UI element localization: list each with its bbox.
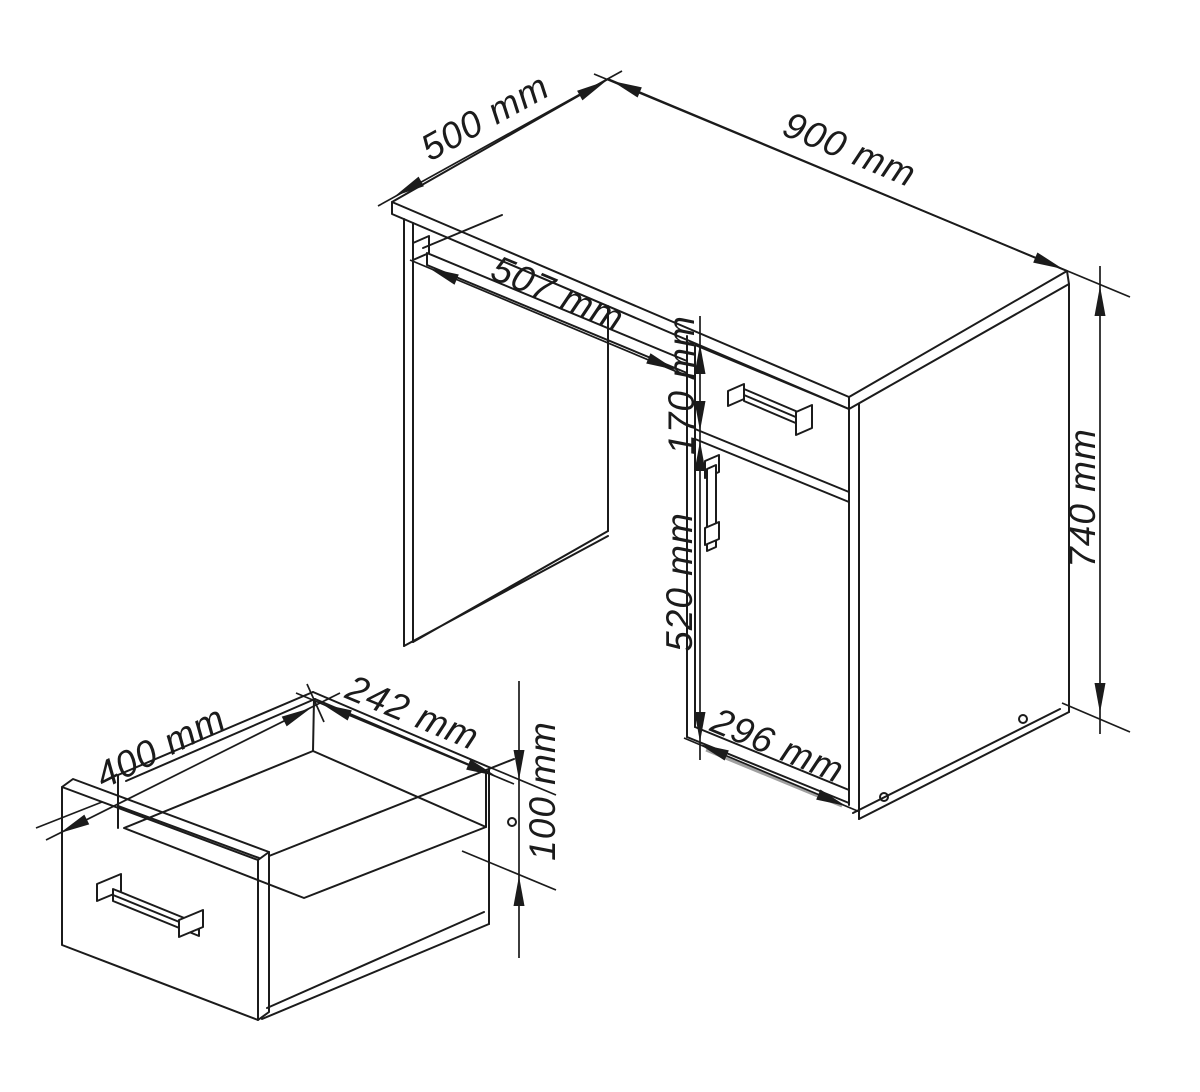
dim-label-width: 900 mm xyxy=(777,104,922,195)
dim-label-tray-depth: 507 mm xyxy=(486,248,631,340)
drawer-screw-hole xyxy=(508,818,516,826)
drawer-handle-right-post xyxy=(796,405,812,435)
dim-label-drawer-front-height: 170 mm xyxy=(661,315,702,455)
drawer-panel-right-strip xyxy=(258,852,269,1020)
desk-dimension-drawing: 500 mm 900 mm 740 mm 507 mm 170 mm 520 m… xyxy=(0,0,1200,1092)
dim-cabinet-width-296: 296 mm xyxy=(684,699,860,812)
drawer-panel-top-strip xyxy=(62,779,269,860)
drawer-handle-bar-line xyxy=(744,395,798,418)
drawer-detail-handle xyxy=(97,874,203,937)
dim-label-depth: 500 mm xyxy=(414,65,556,169)
drawer-box-rear-right-edge xyxy=(486,770,489,924)
dim-desk-height-740: 740 mm xyxy=(1062,266,1130,734)
dim-desk-depth-500: 500 mm xyxy=(378,65,622,206)
right-panel-bottom-edge xyxy=(853,709,1069,819)
drawer-box-right-top-edge xyxy=(269,759,514,856)
dim-label-height: 740 mm xyxy=(1062,428,1103,568)
dim-label-door-height: 520 mm xyxy=(659,512,700,652)
drawer-front-top-edge xyxy=(695,345,849,409)
left-panel-front-edge xyxy=(404,219,413,646)
left-panel-bottom-edge xyxy=(404,531,608,646)
dim-drawer-inner-width-242: 242 mm xyxy=(296,666,514,784)
screw-cap-rear xyxy=(1019,715,1027,723)
drawer-handle-left-post xyxy=(728,384,744,406)
drawer-handle xyxy=(728,384,812,435)
drawer-box-bottom-edge xyxy=(262,912,489,1019)
dim-label-drawer-inner-width: 242 mm xyxy=(339,666,485,758)
dim-desk-width-900: 900 mm xyxy=(594,74,1130,297)
technical-drawing-page: 500 mm 900 mm 740 mm 507 mm 170 mm 520 m… xyxy=(0,0,1200,1092)
door-handle xyxy=(705,455,719,551)
drawer-box-front-top-edge xyxy=(118,806,259,858)
desktop-right-edge xyxy=(849,271,1069,409)
dim-label-drawer-depth: 400 mm xyxy=(89,697,232,796)
dim-door-height-520: 520 mm xyxy=(659,441,706,742)
dim-label-drawer-front-height: 100 mm xyxy=(522,721,563,861)
dim-drawer-depth-400: 400 mm xyxy=(36,693,340,840)
